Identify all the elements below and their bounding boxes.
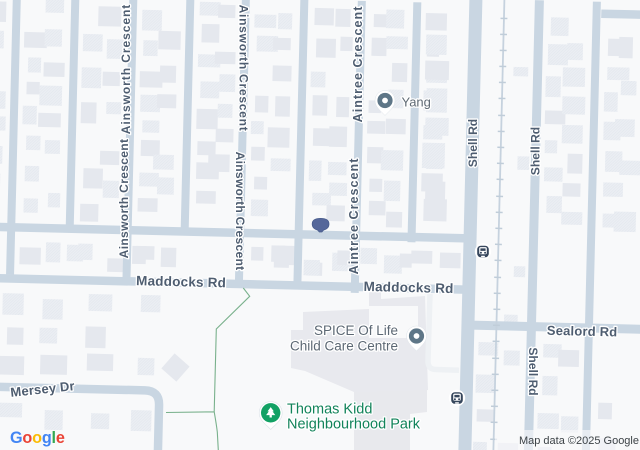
svg-text:Aintree Crescent: Aintree Crescent — [347, 158, 361, 275]
svg-text:Shell Rd: Shell Rd — [526, 347, 540, 395]
svg-text:Child Care Centre: Child Care Centre — [290, 338, 398, 353]
svg-text:SPICE Of Life: SPICE Of Life — [314, 323, 398, 338]
svg-text:Maddocks Rd: Maddocks Rd — [363, 279, 453, 296]
svg-text:Maddocks Rd: Maddocks Rd — [136, 273, 226, 290]
svg-text:Map data ©2025 Google: Map data ©2025 Google — [519, 435, 639, 447]
svg-text:Neighbourhood Park: Neighbourhood Park — [287, 417, 421, 433]
svg-text:Thomas Kidd: Thomas Kidd — [287, 402, 372, 418]
svg-text:Shell Rd: Shell Rd — [466, 119, 480, 167]
svg-text:Sealord Rd: Sealord Rd — [547, 323, 618, 340]
svg-text:Ainsworth Crescent: Ainsworth Crescent — [233, 152, 247, 271]
svg-text:Ainsworth Crescent: Ainsworth Crescent — [117, 139, 131, 259]
svg-text:Ainsworth Crescent: Ainsworth Crescent — [237, 5, 251, 132]
svg-text:Google: Google — [10, 429, 65, 447]
svg-text:Shell Rd: Shell Rd — [528, 127, 542, 175]
svg-text:Ainsworth Crescent: Ainsworth Crescent — [119, 4, 133, 134]
svg-text:Yang: Yang — [402, 95, 431, 110]
svg-text:Aintree Crescent: Aintree Crescent — [351, 6, 365, 123]
